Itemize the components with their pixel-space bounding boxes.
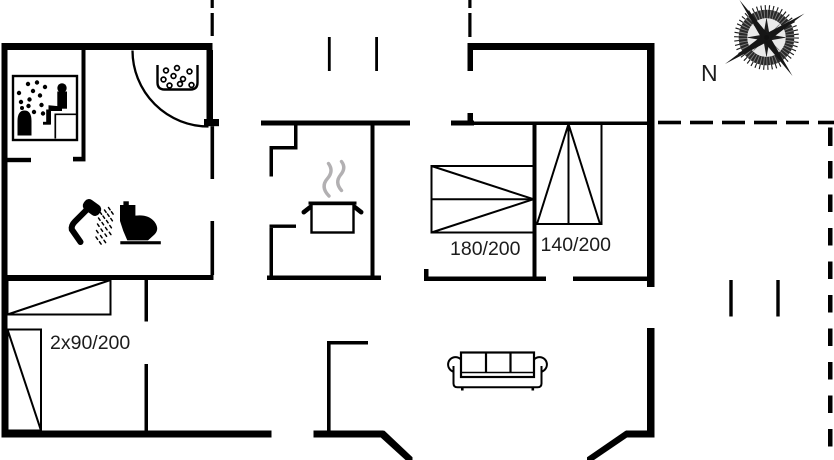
svg-text:2x90/200: 2x90/200 [50,332,130,354]
svg-text:180/200: 180/200 [450,238,521,260]
svg-text:140/200: 140/200 [541,234,612,256]
svg-text:N: N [701,60,718,86]
